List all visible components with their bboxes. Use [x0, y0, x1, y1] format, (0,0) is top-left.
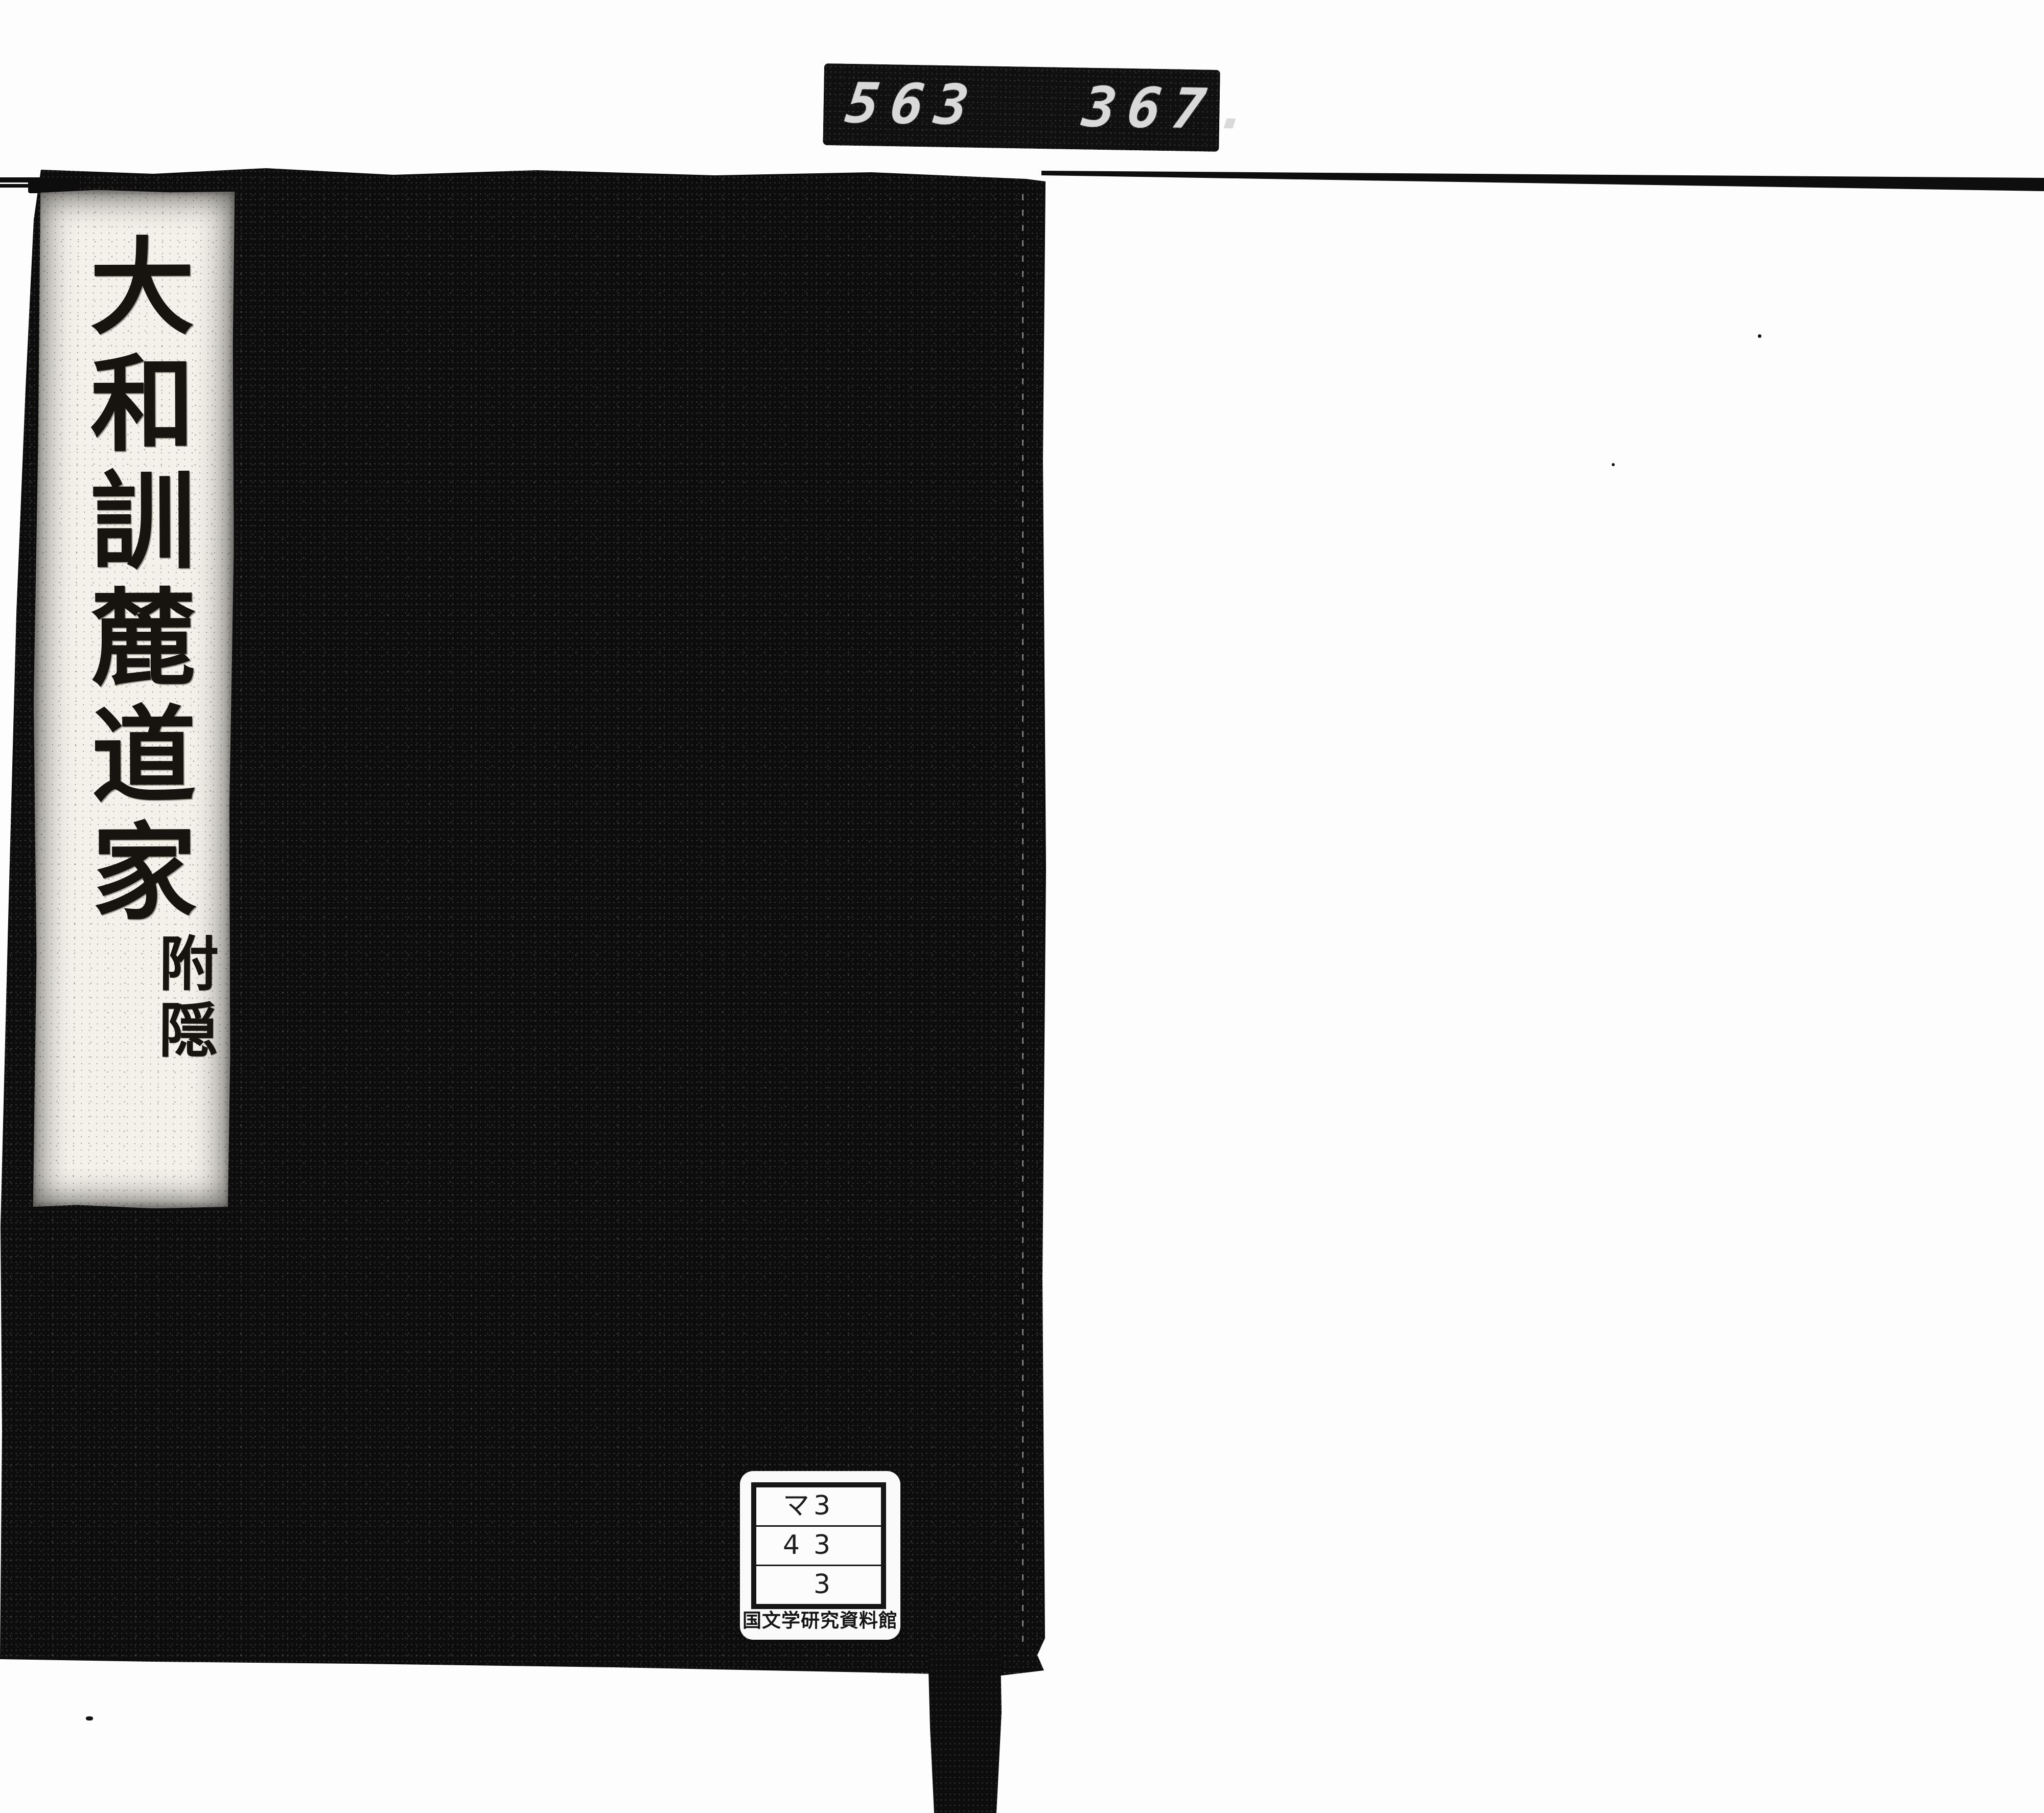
- subtitle-calligraphy: 附隠: [153, 932, 213, 1066]
- call-number-row-3: 3: [756, 1566, 881, 1604]
- frame-counter-display: 563 367.: [823, 63, 1220, 152]
- scanned-book-cover-page: 563 367. 大和訓麓道家 附隠 マ 3 4 3 3: [0, 0, 2044, 1813]
- toner-speck: [86, 1716, 93, 1720]
- cover-crease-line: [1022, 194, 1024, 1651]
- call-number-row-2: 4 3: [756, 1527, 881, 1566]
- call-number-cell: 3: [814, 1532, 830, 1558]
- title-calligraphy: 大和訓麓道家: [80, 232, 188, 935]
- call-number-table: マ 3 4 3 3: [751, 1482, 886, 1609]
- library-label: マ 3 4 3 3 国文学研究資料館: [740, 1471, 900, 1640]
- toner-speck: [1758, 334, 1761, 338]
- title-slip: 大和訓麓道家 附隠: [31, 190, 236, 1209]
- spine-strap: [925, 1651, 1003, 1813]
- library-name: 国文学研究資料館: [740, 1605, 900, 1633]
- call-number-row-1: マ 3: [756, 1487, 881, 1527]
- call-number-cell: 3: [814, 1493, 830, 1519]
- toner-speck: [1612, 463, 1615, 466]
- counter-left-digits: 563: [842, 73, 983, 136]
- call-number-cell: 3: [814, 1571, 830, 1598]
- call-number-cell: 4: [783, 1532, 800, 1558]
- counter-right-digits: 367.: [1079, 77, 1265, 142]
- call-number-cell: マ: [783, 1493, 809, 1519]
- platen-edge-line-right: [1041, 169, 2044, 193]
